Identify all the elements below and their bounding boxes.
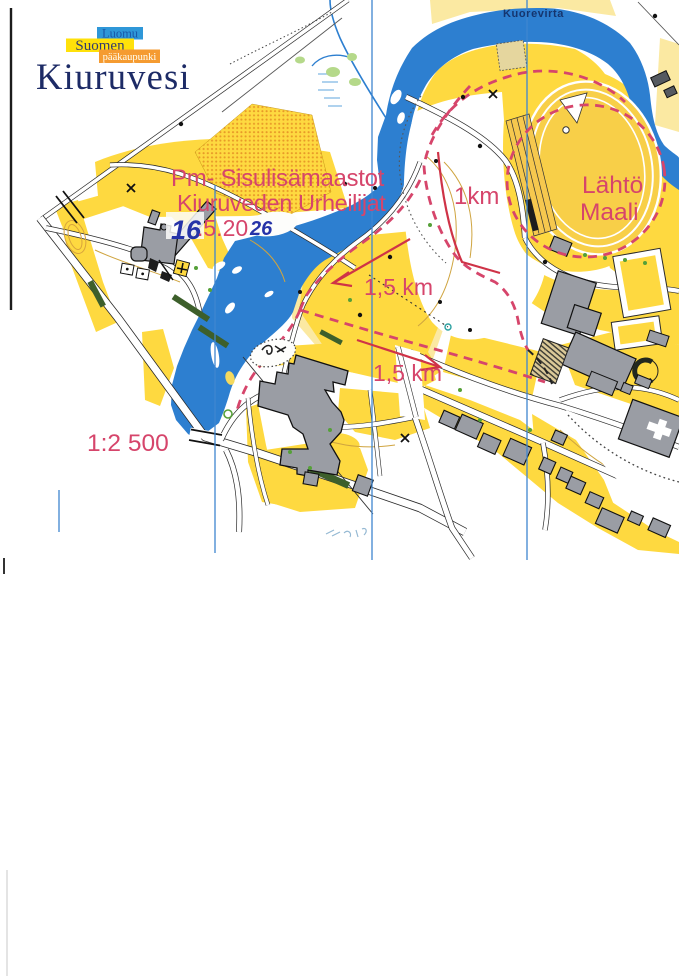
svg-text:1:2 500: 1:2 500 xyxy=(87,430,169,457)
svg-text:1,5 km: 1,5 km xyxy=(373,360,442,386)
svg-text:26: 26 xyxy=(249,218,273,240)
svg-text:1km: 1km xyxy=(454,183,499,210)
svg-text:Maali: Maali xyxy=(580,199,639,226)
svg-text:Kuorevirta: Kuorevirta xyxy=(503,8,564,20)
svg-text:1,5 km: 1,5 km xyxy=(364,274,433,300)
svg-text:Pm- Sisulisämaastot: Pm- Sisulisämaastot xyxy=(171,165,385,192)
svg-text:Kiuruveden Urheilijat: Kiuruveden Urheilijat xyxy=(177,190,386,216)
svg-text:Lähtö: Lähtö xyxy=(582,172,643,199)
svg-text:.5.20: .5.20 xyxy=(197,215,248,241)
svg-text:Kiuruvesi: Kiuruvesi xyxy=(36,56,191,97)
